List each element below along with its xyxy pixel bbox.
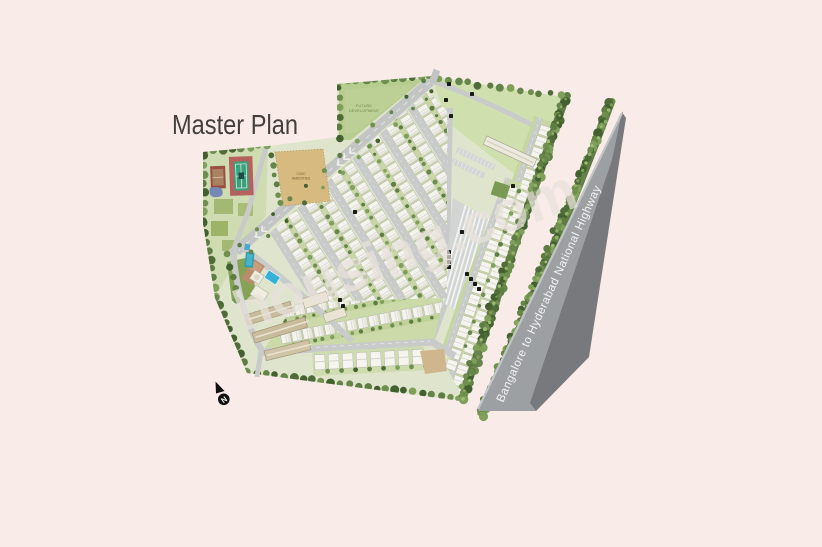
svg-text:Master Plan: Master Plan: [172, 109, 298, 140]
svg-text:AMENITIES: AMENITIES: [292, 177, 311, 181]
svg-text:DEVELOPMENT: DEVELOPMENT: [349, 108, 380, 113]
svg-text:CIVIC: CIVIC: [296, 172, 306, 176]
